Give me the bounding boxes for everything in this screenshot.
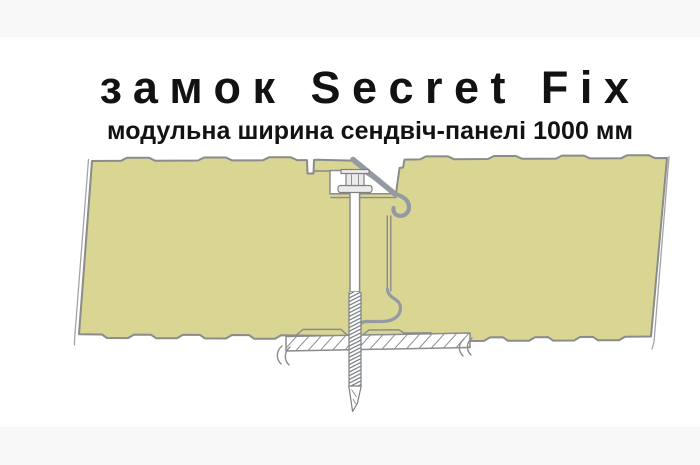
screw-thread <box>349 292 361 386</box>
screw-head-flange <box>341 170 369 174</box>
screw-shaft <box>350 192 360 292</box>
break-marks-left <box>277 346 290 365</box>
screw-drill-tip <box>349 386 361 412</box>
secret-fix-infographic: замок Secret Fix модульна ширина сендвіч… <box>0 0 700 465</box>
screw-hex-head <box>346 174 364 186</box>
support-flange <box>286 333 470 351</box>
screw-washer <box>338 186 372 193</box>
secret-fix-joint-diagram <box>0 0 700 465</box>
